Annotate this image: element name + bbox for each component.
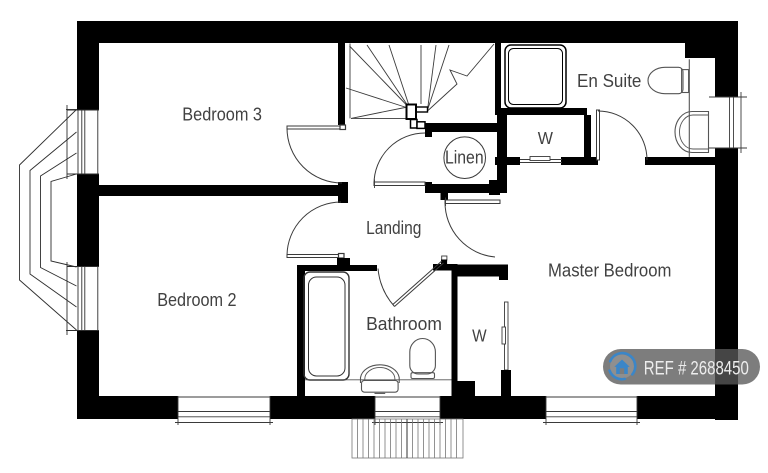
svg-text:Master Bedroom: Master Bedroom <box>548 260 671 281</box>
svg-text:Bathroom: Bathroom <box>366 313 442 334</box>
svg-text:Bedroom 3: Bedroom 3 <box>182 104 262 125</box>
svg-text:W: W <box>472 326 487 346</box>
svg-text:W: W <box>538 128 554 148</box>
svg-text:Landing: Landing <box>366 217 421 238</box>
svg-text:Bedroom 2: Bedroom 2 <box>157 289 236 310</box>
svg-text:En Suite: En Suite <box>577 70 641 91</box>
svg-text:Linen: Linen <box>445 146 484 167</box>
svg-text:REF # 2688450: REF # 2688450 <box>644 357 749 379</box>
